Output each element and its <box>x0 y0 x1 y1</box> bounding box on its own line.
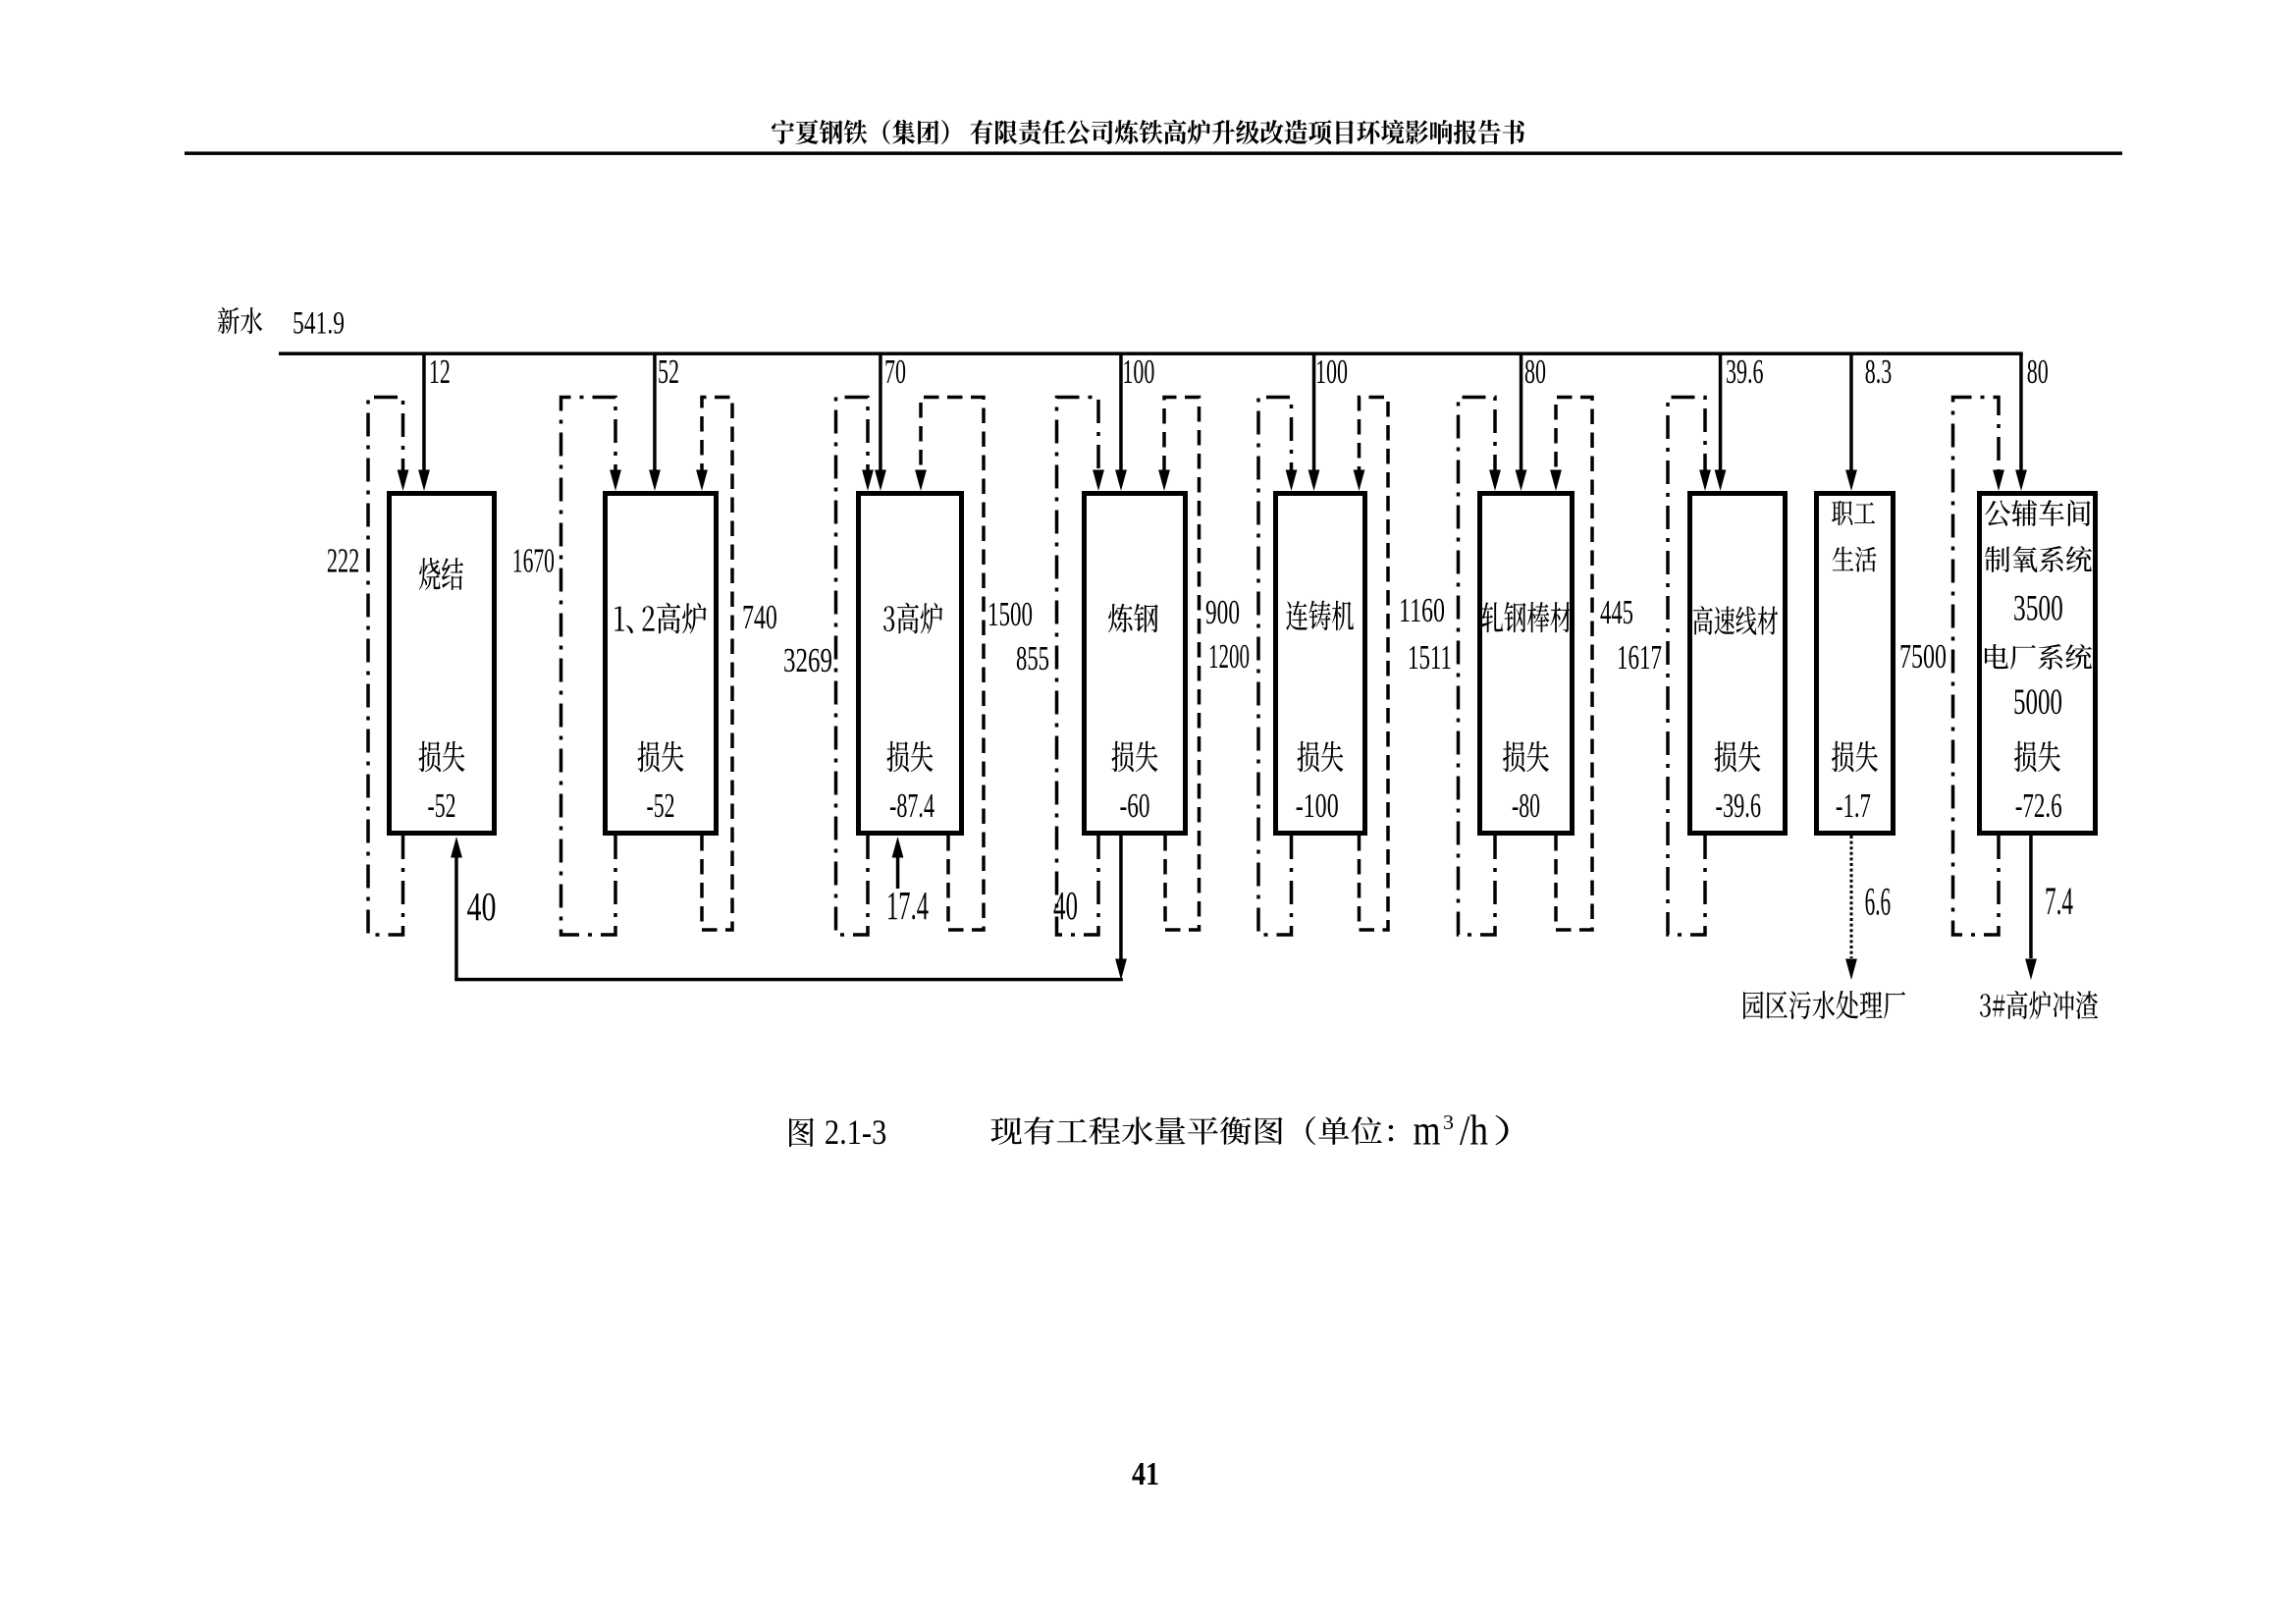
svg-text:2.1-3: 2.1-3 <box>825 1112 886 1152</box>
svg-text:-52: -52 <box>647 786 675 825</box>
svg-text:541.9: 541.9 <box>293 305 345 341</box>
svg-text:740: 740 <box>742 598 777 636</box>
svg-text:3500: 3500 <box>2013 588 2063 628</box>
svg-text:m: m <box>1414 1109 1441 1155</box>
svg-text:445: 445 <box>1600 593 1633 631</box>
svg-text:80: 80 <box>1524 352 1546 391</box>
svg-text:6.6: 6.6 <box>1865 879 1892 923</box>
svg-text:/h: /h <box>1460 1109 1488 1155</box>
svg-text:-80: -80 <box>1512 786 1540 825</box>
svg-text:-39.6: -39.6 <box>1716 786 1762 825</box>
svg-text:8.3: 8.3 <box>1865 352 1893 391</box>
svg-text:7.4: 7.4 <box>2045 879 2073 923</box>
svg-text:5000: 5000 <box>2013 682 2062 723</box>
svg-text:70: 70 <box>884 352 906 391</box>
svg-text:41: 41 <box>1132 1456 1159 1492</box>
svg-text:1200: 1200 <box>1208 637 1250 676</box>
svg-text:100: 100 <box>1122 352 1154 391</box>
svg-text:-87.4: -87.4 <box>889 786 934 825</box>
svg-text:40: 40 <box>1053 883 1078 928</box>
svg-text:1511: 1511 <box>1408 638 1452 677</box>
svg-text:900: 900 <box>1205 593 1240 631</box>
svg-text:39.6: 39.6 <box>1726 352 1764 391</box>
svg-text:100: 100 <box>1315 352 1348 391</box>
svg-text:40: 40 <box>467 884 497 929</box>
svg-text:52: 52 <box>658 352 679 391</box>
svg-text:1160: 1160 <box>1399 591 1445 629</box>
svg-text:855: 855 <box>1016 639 1049 677</box>
svg-text:-100: -100 <box>1296 786 1339 825</box>
svg-text:3269: 3269 <box>783 641 832 679</box>
svg-text:17.4: 17.4 <box>886 883 929 928</box>
svg-text:-60: -60 <box>1120 786 1150 825</box>
svg-text:-72.6: -72.6 <box>2015 786 2062 825</box>
svg-text:1500: 1500 <box>988 595 1033 633</box>
svg-text:12: 12 <box>429 352 451 391</box>
svg-text:3: 3 <box>1443 1110 1454 1134</box>
svg-text:1670: 1670 <box>512 542 555 580</box>
svg-text:80: 80 <box>2027 352 2049 391</box>
svg-text:-1.7: -1.7 <box>1836 786 1871 825</box>
svg-text:7500: 7500 <box>1899 637 1947 676</box>
svg-text:1617: 1617 <box>1617 638 1662 677</box>
svg-text:-52: -52 <box>428 786 456 825</box>
svg-text:222: 222 <box>327 542 359 580</box>
